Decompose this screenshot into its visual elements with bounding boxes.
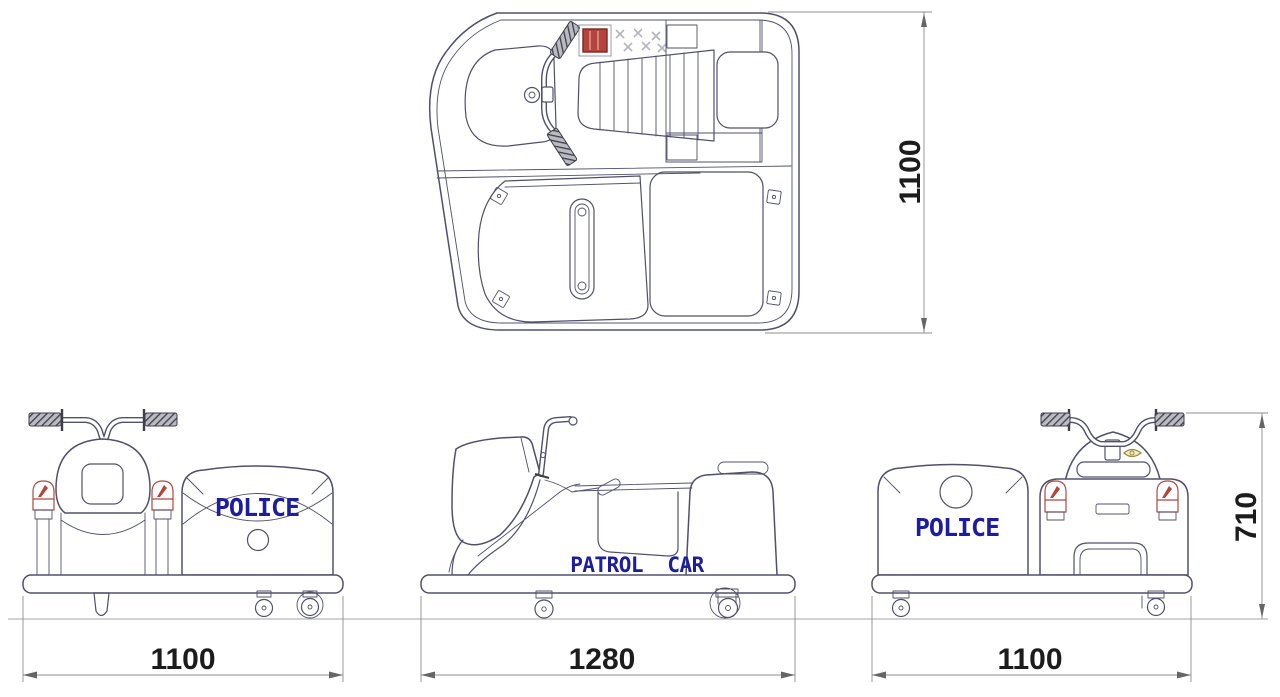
- police-label-front: POLICE: [215, 493, 299, 522]
- drawing-sheet: POLICE: [0, 0, 1280, 692]
- dim-value-rear-width: 1100: [997, 643, 1062, 676]
- dim-value-rear-height: 710: [1230, 492, 1263, 542]
- patrol-car-technical-drawing: POLICE: [0, 0, 1280, 692]
- fairing-front: [56, 439, 150, 513]
- dim-value-front-width: 1100: [150, 643, 215, 676]
- grip-right: [145, 413, 177, 426]
- seat-backrest-plan: [717, 52, 778, 128]
- steering-head: [525, 88, 540, 103]
- grip-right-rear: [1155, 413, 1184, 426]
- platform-front-view: [23, 575, 343, 593]
- platform-rear-view: [872, 575, 1192, 593]
- platform-side-view: [421, 575, 795, 593]
- seat-top-rear: [1077, 462, 1150, 477]
- coin-box: [579, 25, 611, 56]
- dim-value-top-depth: 1100: [894, 139, 927, 204]
- dim-value-side-length: 1280: [569, 643, 636, 676]
- grip-left: [29, 413, 61, 426]
- police-label-rear: POLICE: [915, 513, 999, 542]
- patrol-car-label: PATROL CAR: [570, 553, 704, 577]
- grip-left-rear: [1041, 413, 1070, 426]
- grip-end-cap: [569, 417, 577, 425]
